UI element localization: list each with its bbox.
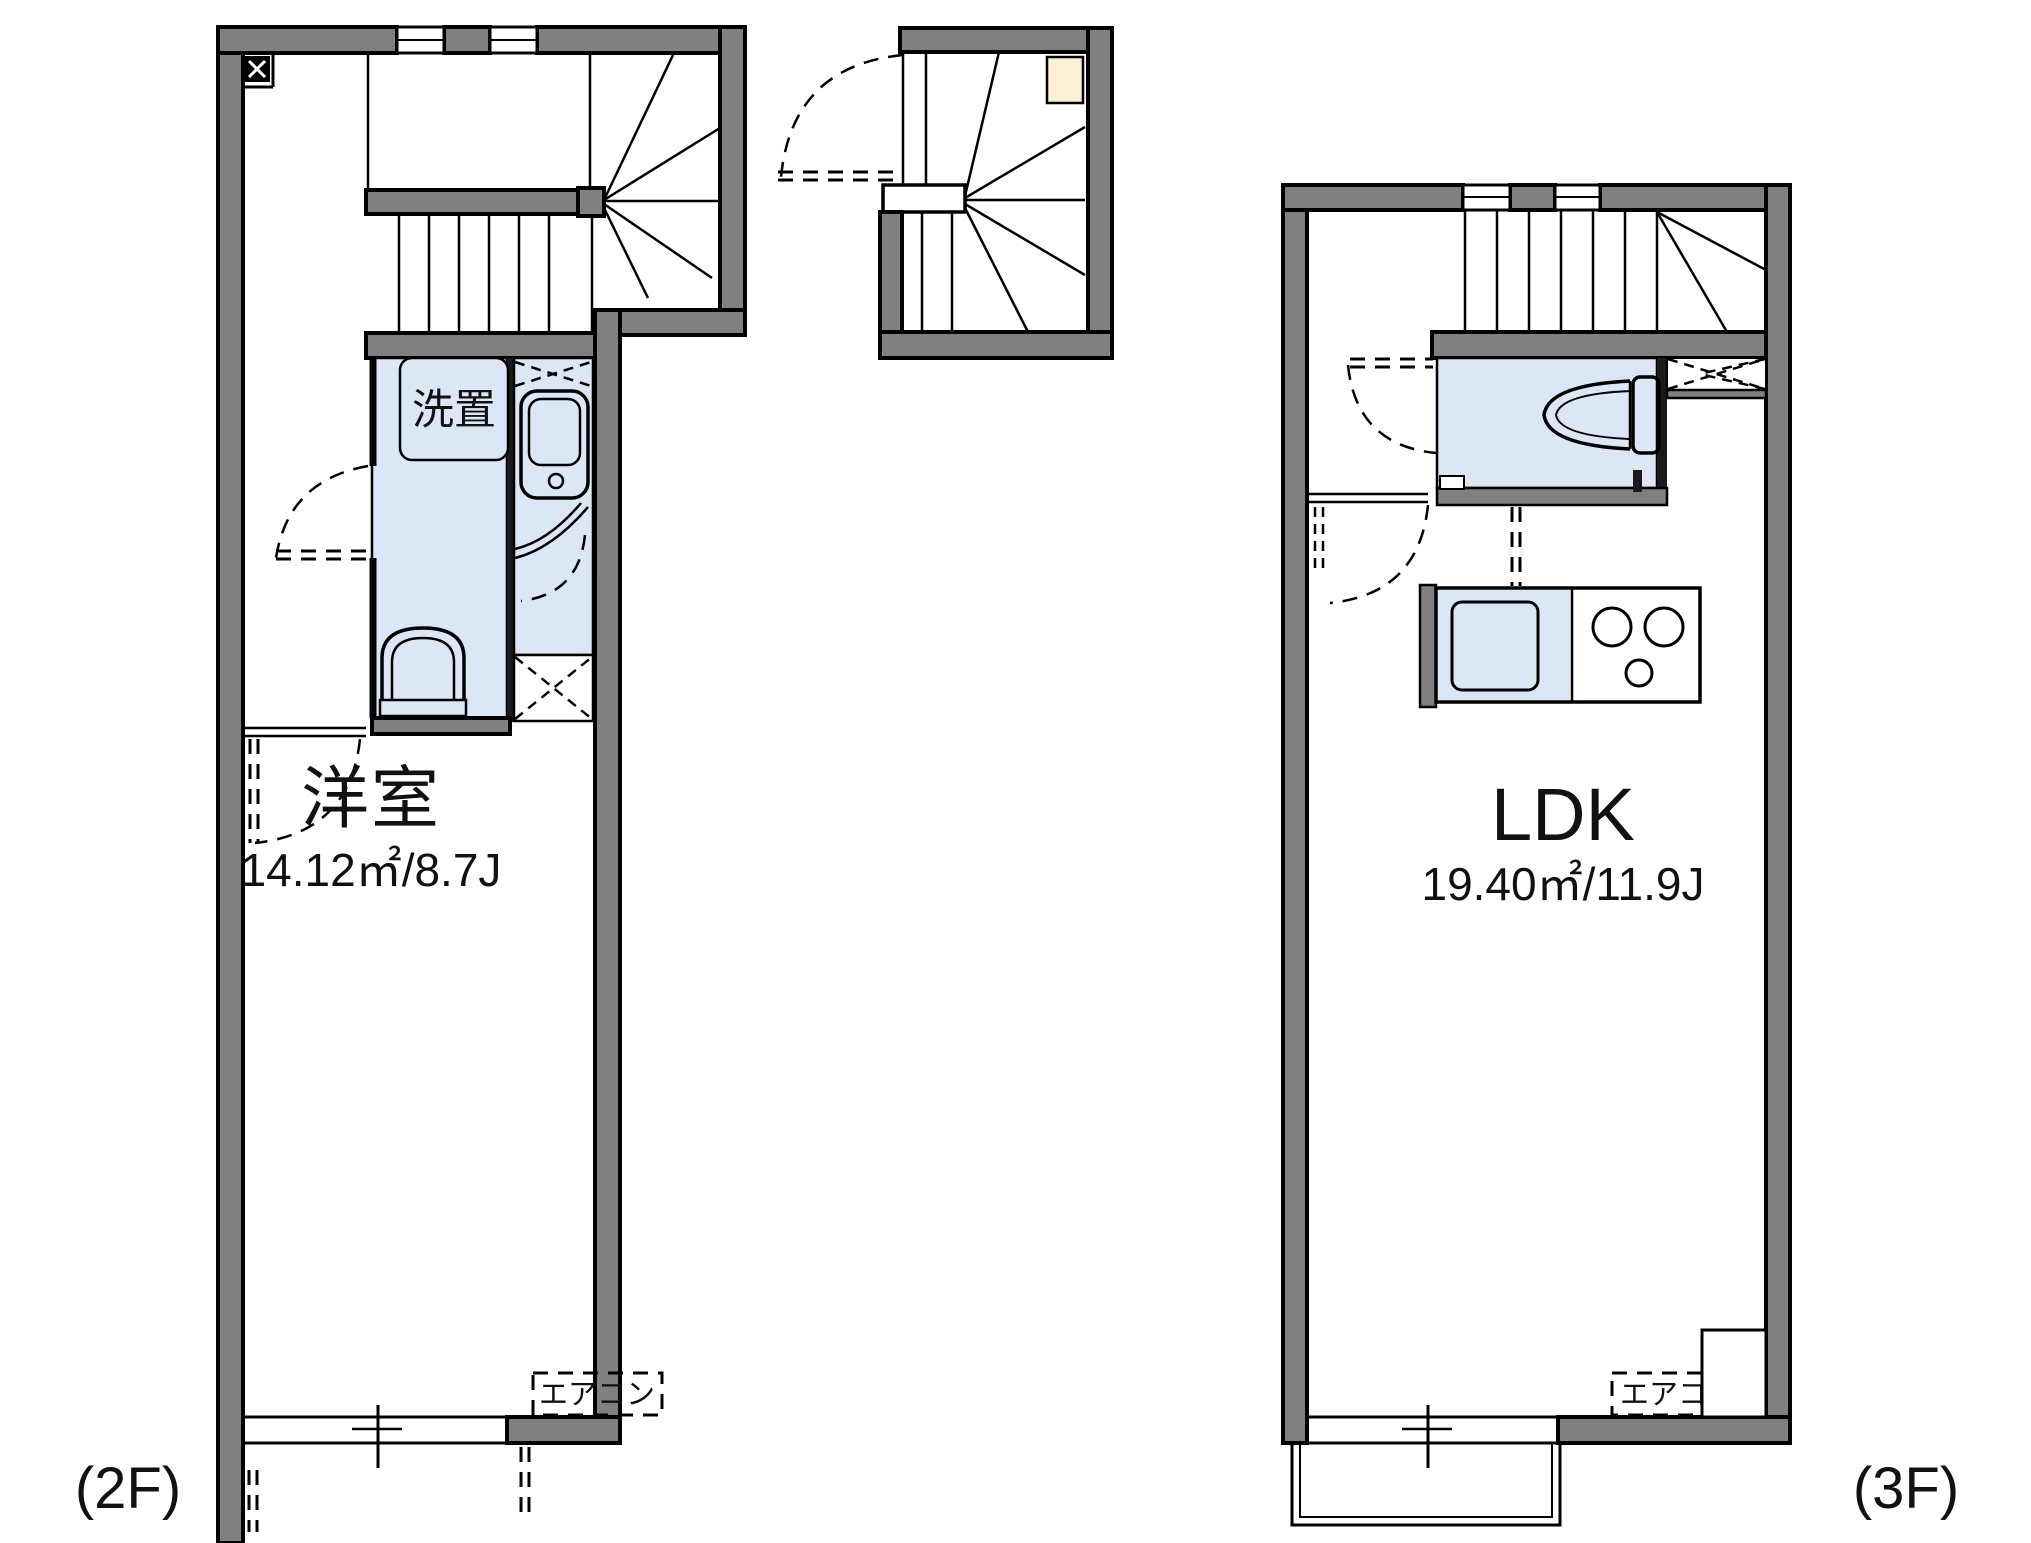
stair-landing-wall — [366, 190, 578, 214]
room-name-3f: LDK — [1491, 773, 1635, 856]
wall-right-3f — [1766, 185, 1790, 1443]
wall-top-pier-2f — [444, 27, 490, 53]
floor-plan-2f: 洗置 — [75, 27, 745, 1543]
meter-box — [1047, 57, 1083, 103]
door-arc — [781, 55, 903, 177]
wall-top-right-2f — [537, 27, 745, 53]
sanitary-top-wall — [366, 333, 595, 358]
door-arc — [1348, 365, 1436, 453]
toilet-wall-stub — [1633, 470, 1642, 492]
room-label-3f: LDK 19.40㎡/11.9J — [1421, 773, 1704, 910]
washroom-bottom-wall — [372, 718, 510, 734]
stair-treads-3f — [1465, 210, 1657, 332]
floor-tag-3f: (3F) — [1853, 1456, 1959, 1521]
room-area-2f: 14.12㎡/8.7J — [241, 844, 502, 896]
stair-winders-2f — [604, 55, 720, 298]
room-area-3f: 19.40㎡/11.9J — [1421, 858, 1704, 910]
landing-wall-bottom — [880, 332, 1112, 358]
toilet-room-3f — [1348, 358, 1667, 505]
stair-winders-3f — [1657, 212, 1766, 332]
landing-wall-right — [1088, 28, 1112, 358]
washroom-door-swing — [276, 466, 368, 559]
toilet-door-swing — [1348, 359, 1436, 453]
washer-space-label: 洗置 — [412, 386, 496, 433]
bottom-window-2f — [243, 1405, 529, 1532]
wall-stair-right-2f — [720, 27, 745, 335]
ldk-door-arc — [1330, 505, 1428, 603]
toilet-bottom-wall — [1437, 488, 1667, 505]
balcony-outline — [1292, 1443, 1560, 1525]
bathroom-floor — [514, 358, 593, 655]
aircon-label-2f: エアコン — [539, 1379, 655, 1411]
toilet-wall-notch — [1440, 476, 1464, 489]
stair-bottom-wall-3f — [1432, 332, 1766, 358]
landing-wall-left — [880, 212, 902, 332]
aircon-2f: エアコン — [533, 1373, 662, 1415]
balcony-3f — [1292, 1443, 1560, 1525]
wall-top-right-3f — [1600, 185, 1766, 210]
wall-top-2f — [218, 27, 397, 53]
wall-left-2f — [218, 27, 243, 1543]
bathroom-2f — [514, 358, 593, 721]
landing-entry-door — [778, 55, 903, 180]
door-arc — [276, 466, 368, 558]
landing-wall-top — [900, 28, 1112, 52]
floor-plan-drawing: 洗置 — [0, 0, 2031, 1543]
walls-2f — [218, 27, 745, 1543]
landing-treads — [922, 212, 952, 332]
closet-3f — [1667, 358, 1766, 398]
wall-top-3f — [1283, 185, 1463, 210]
kitchen-wall-stub — [1420, 585, 1436, 707]
staircase-3f — [1465, 210, 1766, 332]
kitchen-sink-area — [1438, 590, 1570, 700]
wall-bottom-right-3f — [1558, 1417, 1790, 1443]
closet-under-wall — [1667, 390, 1766, 398]
wall-left-3f — [1283, 185, 1307, 1443]
closet-2f — [514, 655, 593, 721]
washroom-2f: 洗置 — [276, 358, 514, 734]
stair-treads-2f — [399, 214, 592, 333]
floor-plan-3f: LDK 19.40㎡/11.9J エアコン (3F) — [1283, 185, 1959, 1525]
stair-landing-block — [778, 28, 1112, 358]
room-label-2f: 洋室 14.12㎡/8.7J — [241, 761, 502, 896]
stair-newel-2f — [578, 188, 604, 216]
bottom-window-3f — [1307, 1405, 1558, 1468]
kitchen-3f — [1420, 585, 1700, 707]
floor-plan-canvas: 洗置 — [0, 0, 2031, 1543]
stair-newel-landing — [883, 185, 965, 212]
floor-tag-2f: (2F) — [75, 1456, 181, 1521]
room-name-2f: 洋室 — [301, 761, 441, 837]
wall-top-pier-3f — [1510, 185, 1555, 210]
wall-bottom-right-2f — [507, 1417, 620, 1443]
counter-step-box — [1702, 1330, 1766, 1417]
pipe-space-icon — [243, 53, 273, 87]
wall-right-2f — [595, 310, 620, 1443]
balcony-inner-line — [1300, 1443, 1552, 1517]
